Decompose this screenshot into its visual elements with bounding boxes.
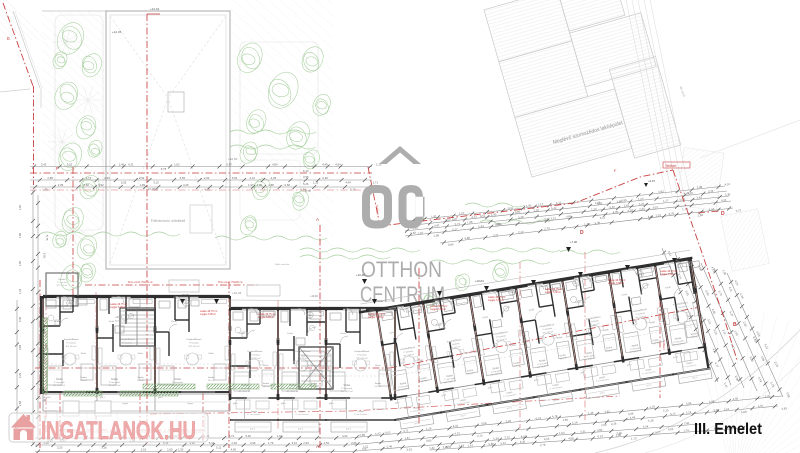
svg-text:5,75: 5,75 (45, 235, 49, 241)
svg-text:4,44: 4,44 (345, 180, 351, 184)
svg-text:WT: 16,27 m²: WT: 16,27 m² (286, 390, 298, 393)
svg-text:Előtér: Előtér (208, 352, 214, 355)
svg-text:B: B (733, 322, 737, 328)
svg-text:3,55: 3,55 (180, 176, 186, 180)
svg-text:5,18: 5,18 (648, 418, 654, 423)
svg-text:Fürdő: Fürdő (340, 332, 346, 335)
svg-text:4,31: 4,31 (128, 162, 134, 166)
svg-text:4,77: 4,77 (655, 430, 661, 434)
svg-text:0,72: 0,72 (736, 208, 742, 213)
svg-text:Konyha/Étkező: Konyha/Étkező (187, 338, 202, 341)
svg-text:+10,46: +10,46 (180, 293, 189, 297)
svg-text:1,56: 1,56 (709, 207, 715, 212)
svg-text:Tetőkert: Tetőkert (665, 164, 676, 168)
svg-text:1,19: 1,19 (417, 231, 423, 236)
svg-text:0,69: 0,69 (448, 242, 454, 247)
svg-text:Előtér: Előtér (375, 364, 381, 367)
svg-text:3,16: 3,16 (101, 445, 107, 449)
svg-text:Szoba: Szoba (137, 377, 144, 379)
svg-text:4,45: 4,45 (520, 439, 526, 443)
svg-text:2,46: 2,46 (119, 162, 125, 166)
svg-text:+12,45: +12,45 (112, 30, 122, 34)
svg-text:Szoba: Szoba (263, 383, 270, 385)
svg-text:4,68: 4,68 (268, 183, 274, 187)
svg-text:3,10: 3,10 (153, 180, 159, 184)
svg-text:1,60: 1,60 (18, 204, 22, 210)
svg-text:5,92: 5,92 (98, 183, 104, 187)
svg-text:2,02: 2,02 (204, 176, 210, 180)
svg-text:P: csm.ker: P: csm.ker (57, 282, 67, 284)
svg-text:WT: 24,5 m²: WT: 24,5 m² (189, 345, 200, 348)
svg-text:2,92: 2,92 (139, 176, 145, 180)
svg-text:4,03: 4,03 (668, 427, 674, 431)
svg-text:Szoba: Szoba (80, 377, 87, 379)
svg-text:3,75: 3,75 (477, 434, 483, 439)
svg-text:WT: 24,5 m²: WT: 24,5 m² (250, 357, 261, 360)
svg-text:3,38: 3,38 (725, 192, 731, 197)
svg-text:5,14: 5,14 (493, 436, 499, 440)
svg-text:Előtér: Előtér (138, 352, 144, 355)
svg-text:Fürdő: Fürdő (239, 332, 245, 335)
svg-text:jp/b 0: jp/b 0 (328, 403, 334, 405)
svg-text:5,36: 5,36 (18, 316, 22, 322)
svg-text:5,43: 5,43 (478, 224, 484, 229)
svg-text:5,60: 5,60 (410, 231, 416, 236)
svg-text:P: lam.parkt: P: lam.parkt (109, 381, 120, 384)
svg-text:1,24: 1,24 (426, 426, 432, 431)
svg-text:4,94: 4,94 (335, 162, 341, 166)
svg-text:4,31: 4,31 (580, 429, 586, 433)
svg-text:4,51: 4,51 (521, 434, 527, 438)
svg-text:Előtér: Előtér (81, 352, 87, 355)
svg-text:1,50: 1,50 (178, 447, 184, 451)
svg-text:4,69: 4,69 (568, 436, 574, 440)
svg-text:1,34: 1,34 (18, 288, 22, 294)
svg-text:+10,46: +10,46 (356, 273, 365, 277)
svg-text:2,45: 2,45 (104, 176, 110, 180)
svg-text:4,93: 4,93 (658, 189, 664, 194)
svg-text:5,60: 5,60 (43, 253, 47, 259)
svg-text:2,32: 2,32 (655, 213, 661, 218)
svg-text:3,20: 3,20 (687, 191, 693, 196)
svg-text:3,10: 3,10 (292, 441, 298, 445)
svg-text:1,71: 1,71 (373, 180, 379, 184)
svg-text:3,63: 3,63 (696, 195, 702, 200)
svg-text:CENTRUM: CENTRUM (360, 282, 445, 307)
svg-text:6,75: 6,75 (305, 189, 311, 193)
svg-text:P: kerámia: P: kerámia (357, 354, 367, 356)
svg-text:3,53: 3,53 (600, 215, 606, 220)
svg-text:4,88: 4,88 (464, 236, 470, 241)
svg-text:5,26: 5,26 (303, 182, 309, 186)
svg-text:2,12: 2,12 (518, 230, 524, 235)
svg-text:Kötél szár.léce: Kötél szár.léce (275, 263, 290, 266)
svg-text:Loggia: 5,98 m²: Loggia: 5,98 m² (368, 316, 384, 319)
svg-text:+7,00: +7,00 (570, 240, 578, 244)
svg-text:5,52: 5,52 (232, 176, 238, 180)
svg-text:1,64: 1,64 (559, 431, 565, 435)
svg-text:3,00: 3,00 (443, 445, 449, 449)
svg-text:1,25: 1,25 (313, 180, 319, 184)
svg-text:14,2 m²: 14,2 m² (137, 379, 144, 382)
svg-text:0,60: 0,60 (285, 183, 291, 187)
svg-text:0,74: 0,74 (535, 416, 541, 421)
svg-text:jp/b 0: jp/b 0 (280, 403, 286, 405)
svg-text:1,96: 1,96 (616, 433, 622, 437)
svg-text:1,66: 1,66 (616, 199, 622, 204)
svg-text:2,93: 2,93 (303, 441, 309, 445)
svg-text:+10,46: +10,46 (232, 291, 242, 295)
svg-text:Loggia: 5,98 m²: Loggia: 5,98 m² (608, 282, 624, 285)
svg-text:1,62: 1,62 (174, 162, 180, 166)
svg-text:Loggia: 5,98 m²: Loggia: 5,98 m² (430, 308, 446, 311)
svg-text:4,59: 4,59 (733, 396, 739, 401)
svg-text:4,34: 4,34 (627, 208, 633, 213)
svg-text:2,01: 2,01 (141, 447, 147, 451)
svg-text:+10,33: +10,33 (115, 317, 123, 319)
svg-text:4,02: 4,02 (342, 434, 348, 438)
svg-text:P: kerámia: P: kerámia (189, 342, 199, 344)
svg-text:WT: 16,27 m²: WT: 16,27 m² (341, 390, 353, 393)
svg-text:3,37: 3,37 (504, 435, 510, 439)
svg-text:3,82: 3,82 (597, 428, 603, 432)
svg-text:2,67: 2,67 (624, 203, 630, 208)
svg-text:5,25: 5,25 (245, 434, 251, 438)
svg-text:1,39: 1,39 (257, 183, 263, 187)
svg-text:3,03: 3,03 (406, 447, 412, 451)
svg-text:2,18: 2,18 (231, 441, 237, 445)
svg-text:5,42: 5,42 (551, 206, 557, 211)
svg-text:WT: 24,5 m²: WT: 24,5 m² (66, 345, 77, 348)
svg-text:OTTHON: OTTHON (361, 257, 442, 282)
svg-text:+10,03: +10,03 (475, 279, 484, 283)
svg-text:3,73: 3,73 (86, 176, 92, 180)
svg-text:2,96: 2,96 (250, 441, 256, 445)
svg-text:1,23: 1,23 (638, 197, 644, 202)
svg-text:5,67: 5,67 (500, 441, 506, 445)
svg-text:2,25: 2,25 (58, 183, 64, 187)
svg-text:5,11: 5,11 (216, 445, 222, 449)
svg-text:2,21: 2,21 (493, 233, 499, 238)
svg-text:6,10: 6,10 (303, 169, 309, 173)
svg-text:Szoba: Szoba (208, 377, 215, 379)
svg-text:1,78: 1,78 (649, 404, 655, 409)
svg-text:1,10: 1,10 (758, 404, 764, 409)
svg-text:5,87: 5,87 (609, 205, 615, 210)
svg-text:3,29: 3,29 (350, 187, 356, 191)
svg-text:Loggia: Loggia (122, 403, 129, 405)
svg-text:E: E (7, 36, 10, 41)
svg-text:A: A (316, 444, 319, 449)
svg-text:1,67: 1,67 (404, 436, 410, 441)
svg-text:5,34: 5,34 (643, 424, 649, 428)
svg-text:WT: 16,27 m²: WT: 16,27 m² (53, 384, 65, 387)
svg-text:WT: 16,27 m²: WT: 16,27 m² (238, 390, 250, 393)
svg-text:Loggia: Loggia (251, 411, 258, 413)
svg-text:P: lam.parkt: P: lam.parkt (341, 387, 352, 390)
svg-text:5,74: 5,74 (229, 434, 235, 438)
svg-text:3,03: 3,03 (652, 205, 658, 210)
svg-text:14,2 m²: 14,2 m² (374, 385, 381, 388)
svg-text:P: lam.parkt: P: lam.parkt (54, 381, 65, 384)
svg-text:2,79: 2,79 (544, 226, 550, 231)
svg-text:A: A (316, 217, 319, 222)
svg-text:1,62: 1,62 (277, 434, 283, 438)
svg-text:4,53: 4,53 (544, 437, 550, 441)
svg-text:5,92: 5,92 (67, 162, 73, 166)
svg-text:4,84: 4,84 (272, 162, 278, 166)
svg-text:3,11: 3,11 (508, 206, 514, 211)
svg-text:Emelet: Emelet (59, 278, 66, 281)
svg-text:4,35: 4,35 (271, 176, 277, 180)
svg-text:0,90: 0,90 (322, 176, 328, 180)
svg-text:Szoba: Szoba (56, 379, 63, 381)
svg-text:4,01: 4,01 (453, 424, 459, 429)
svg-text:Loggia: 5,98 m²: Loggia: 5,98 m² (660, 273, 676, 276)
svg-text:1,99: 1,99 (140, 183, 146, 187)
svg-text:5,55: 5,55 (121, 180, 127, 184)
svg-text:P: csm.kerámia: P: csm.kerámia (354, 413, 368, 416)
svg-text:3,43: 3,43 (41, 162, 47, 166)
svg-text:4,05: 4,05 (613, 210, 619, 215)
svg-text:Lakás 46,75 m²: Lakás 46,75 m² (545, 288, 562, 291)
svg-text:jp/b 0: jp/b 0 (99, 397, 105, 399)
svg-text:Loggia: 5,98 m²: Loggia: 5,98 m² (258, 316, 274, 319)
svg-text:Lakás 46,75 m²: Lakás 46,75 m² (258, 313, 275, 316)
svg-text:Konyha/Étkező: Konyha/Étkező (248, 350, 263, 353)
svg-text:2,31: 2,31 (765, 394, 771, 399)
svg-text:14,2 m²: 14,2 m² (208, 379, 215, 382)
svg-text:Loggia: Loggia (187, 403, 194, 405)
svg-text:0,60: 0,60 (84, 183, 90, 187)
svg-text:1,37: 1,37 (458, 211, 464, 216)
svg-text:1,99: 1,99 (433, 233, 439, 238)
svg-text:4,72: 4,72 (471, 215, 477, 220)
svg-text:4,44: 4,44 (630, 415, 636, 420)
svg-text:1,00: 1,00 (679, 197, 685, 202)
svg-text:Loggia: 5,98 m²: Loggia: 5,98 m² (200, 313, 216, 316)
svg-text:5,69: 5,69 (741, 410, 747, 415)
svg-text:Félintenzív zöldtető: Félintenzív zöldtető (151, 218, 186, 223)
svg-text:4,84: 4,84 (686, 401, 692, 406)
svg-text:3,37: 3,37 (550, 216, 556, 221)
svg-text:14,2 m²: 14,2 m² (80, 379, 87, 382)
svg-text:D: D (580, 230, 584, 236)
svg-text:Lakás 46,75 m²: Lakás 46,75 m² (110, 303, 127, 306)
svg-text:Lakás 46,75 m²: Lakás 46,75 m² (488, 296, 505, 299)
svg-text:2,89: 2,89 (47, 176, 53, 180)
svg-text:Loggia: 5,98 m²: Loggia: 5,98 m² (488, 299, 504, 302)
svg-text:1,60: 1,60 (562, 418, 568, 423)
svg-text:2,24: 2,24 (708, 189, 714, 194)
svg-text:Szoba: Szoba (111, 379, 118, 381)
svg-text:F: F (56, 166, 59, 171)
svg-text:1,95: 1,95 (526, 203, 532, 208)
svg-text:P: csm.kerámia: P: csm.kerámia (295, 413, 309, 416)
svg-text:Bem.: 2,76 m: Bem.: 2,76 m (115, 321, 128, 323)
svg-text:4,00: 4,00 (231, 447, 237, 451)
svg-text:3,68: 3,68 (18, 344, 22, 350)
svg-text:1,19: 1,19 (459, 443, 465, 447)
svg-text:5,17: 5,17 (452, 227, 458, 232)
svg-text:1,08: 1,08 (696, 185, 702, 190)
svg-text:1,06: 1,06 (467, 220, 473, 225)
svg-text:4,81: 4,81 (604, 409, 610, 414)
svg-text:5,76: 5,76 (668, 211, 674, 216)
svg-text:3,95: 3,95 (303, 175, 309, 179)
svg-text:+10,50: +10,50 (228, 157, 238, 161)
svg-text:jp/b 0: jp/b 0 (45, 397, 51, 399)
svg-text:5,43: 5,43 (375, 431, 381, 436)
svg-text:Lakás 46,75 m²: Lakás 46,75 m² (608, 279, 625, 282)
svg-text:1,97: 1,97 (248, 183, 254, 187)
svg-text:III. Emelet: III. Emelet (694, 421, 762, 438)
svg-text:0,97: 0,97 (226, 162, 232, 166)
svg-text:P: kerámia: P: kerámia (66, 342, 76, 344)
svg-text:Előtér: Előtér (263, 364, 269, 367)
svg-text:4,83: 4,83 (781, 406, 787, 411)
svg-text:D: D (721, 211, 725, 217)
svg-text:2,26: 2,26 (611, 421, 617, 426)
svg-text:0,51: 0,51 (385, 430, 391, 435)
svg-text:1,39: 1,39 (42, 187, 48, 191)
svg-text:2,68: 2,68 (18, 400, 22, 406)
svg-text:4,78: 4,78 (552, 414, 558, 419)
svg-text:4,24: 4,24 (724, 182, 730, 187)
svg-text:4,53: 4,53 (324, 441, 330, 445)
svg-text:1,65: 1,65 (167, 447, 173, 451)
svg-text:5,82: 5,82 (597, 201, 603, 206)
svg-text:5,36: 5,36 (594, 221, 600, 226)
svg-text:Szoba: Szoba (375, 383, 382, 385)
svg-text:4,31: 4,31 (454, 431, 460, 436)
svg-text:WT: 16,27 m²: WT: 16,27 m² (108, 384, 120, 387)
svg-text:jp/b 0: jp/b 0 (232, 403, 238, 405)
svg-text:1,79: 1,79 (268, 441, 274, 445)
svg-text:Lakás 46,75 m²: Lakás 46,75 m² (660, 270, 677, 273)
svg-text:0,69: 0,69 (359, 433, 365, 438)
svg-text:0,91: 0,91 (434, 223, 440, 228)
svg-text:2,94: 2,94 (506, 419, 512, 424)
svg-text:2,88: 2,88 (697, 213, 703, 218)
svg-text:+12,91: +12,91 (150, 7, 160, 11)
svg-text:4,31: 4,31 (250, 176, 256, 180)
svg-text:+9,87: +9,87 (648, 179, 656, 183)
svg-text:0,57: 0,57 (597, 434, 603, 438)
svg-text:P: kerámia: P: kerámia (250, 354, 260, 356)
svg-text:Piros vonal: 75x200 cm: Piros vonal: 75x200 cm (218, 281, 243, 284)
svg-text:1,51: 1,51 (724, 407, 730, 412)
svg-text:jp/b 0: jp/b 0 (157, 397, 163, 399)
svg-text:1,46: 1,46 (588, 411, 594, 416)
svg-text:2,29: 2,29 (18, 372, 22, 378)
svg-text:WT: 24,5 m²: WT: 24,5 m² (357, 357, 368, 360)
svg-text:Loggia: Loggia (299, 411, 306, 413)
svg-text:4,75: 4,75 (670, 412, 676, 417)
svg-text:Fürdő: Fürdő (287, 332, 293, 335)
svg-text:0,97: 0,97 (362, 446, 368, 450)
svg-text:Loggia: Loggia (357, 411, 364, 413)
svg-text:1,69: 1,69 (709, 399, 715, 404)
svg-text:4,21: 4,21 (721, 198, 727, 203)
svg-text:4,29: 4,29 (183, 183, 189, 187)
svg-text:2,08: 2,08 (601, 423, 607, 428)
svg-text:2,63: 2,63 (639, 207, 645, 212)
svg-text:0,56: 0,56 (481, 421, 487, 426)
svg-text:Loggia: 5,98 m²: Loggia: 5,98 m² (545, 291, 561, 294)
svg-text:+10,46: +10,46 (310, 295, 318, 298)
svg-text:1,20: 1,20 (591, 207, 597, 212)
svg-text:3,71: 3,71 (403, 428, 409, 433)
svg-text:4,91: 4,91 (204, 187, 210, 191)
svg-text:1,91: 1,91 (431, 214, 437, 219)
svg-text:Fürdő: Fürdő (54, 320, 60, 323)
svg-text:2,81: 2,81 (684, 421, 690, 425)
svg-text:2,10: 2,10 (533, 208, 539, 213)
svg-text:P: csm.kerámia: P: csm.kerámia (247, 413, 261, 416)
svg-text:5,46: 5,46 (387, 444, 393, 448)
svg-text:P: kerámia: P: kerámia (122, 342, 132, 344)
svg-text:Konyha/Étkező: Konyha/Étkező (64, 338, 79, 341)
svg-text:P: lam.parkt: P: lam.parkt (172, 381, 183, 384)
svg-text:4,49: 4,49 (322, 162, 328, 166)
svg-text:14,2 m²: 14,2 m² (263, 385, 270, 388)
svg-text:1,85: 1,85 (18, 260, 22, 266)
svg-text:1,51: 1,51 (467, 443, 473, 447)
svg-text:Konyha/Étkező: Konyha/Étkező (355, 350, 370, 353)
svg-text:1,86: 1,86 (18, 232, 22, 238)
svg-text:0,65: 0,65 (426, 438, 432, 443)
svg-text:5,36: 5,36 (518, 215, 524, 220)
svg-text:3,23: 3,23 (639, 202, 645, 207)
svg-text:5,15: 5,15 (663, 408, 669, 413)
svg-text:WT: 2,78 m²: WT: 2,78 m² (57, 284, 68, 287)
svg-text:2,17: 2,17 (537, 202, 543, 207)
svg-text:5,60: 5,60 (496, 222, 502, 227)
svg-text:1,74: 1,74 (683, 428, 689, 432)
svg-text:3,20: 3,20 (57, 445, 63, 449)
svg-text:Szoba: Szoba (174, 379, 181, 381)
svg-text:Szoba: Szoba (343, 385, 350, 387)
svg-text:2,76: 2,76 (540, 443, 546, 447)
svg-text:Konyha/Étkező: Konyha/Étkező (120, 338, 135, 341)
svg-text:Lakás 46,75 m²: Lakás 46,75 m² (200, 310, 217, 313)
svg-text:Loggia: 5,98 m²: Loggia: 5,98 m² (110, 306, 126, 309)
svg-text:Piros vonal: 75x200 cm: Piros vonal: 75x200 cm (128, 281, 153, 284)
svg-text:3,74: 3,74 (454, 222, 460, 227)
svg-text:1,70: 1,70 (631, 436, 637, 440)
svg-text:INGATLANOK.HU: INGATLANOK.HU (41, 417, 196, 445)
svg-text:Fürdő: Fürdő (171, 320, 177, 323)
svg-text:5,75: 5,75 (161, 167, 167, 171)
svg-text:5,24: 5,24 (686, 410, 692, 415)
svg-text:Lakás 46,75 m²: Lakás 46,75 m² (430, 305, 447, 308)
svg-text:5,16: 5,16 (572, 420, 578, 425)
